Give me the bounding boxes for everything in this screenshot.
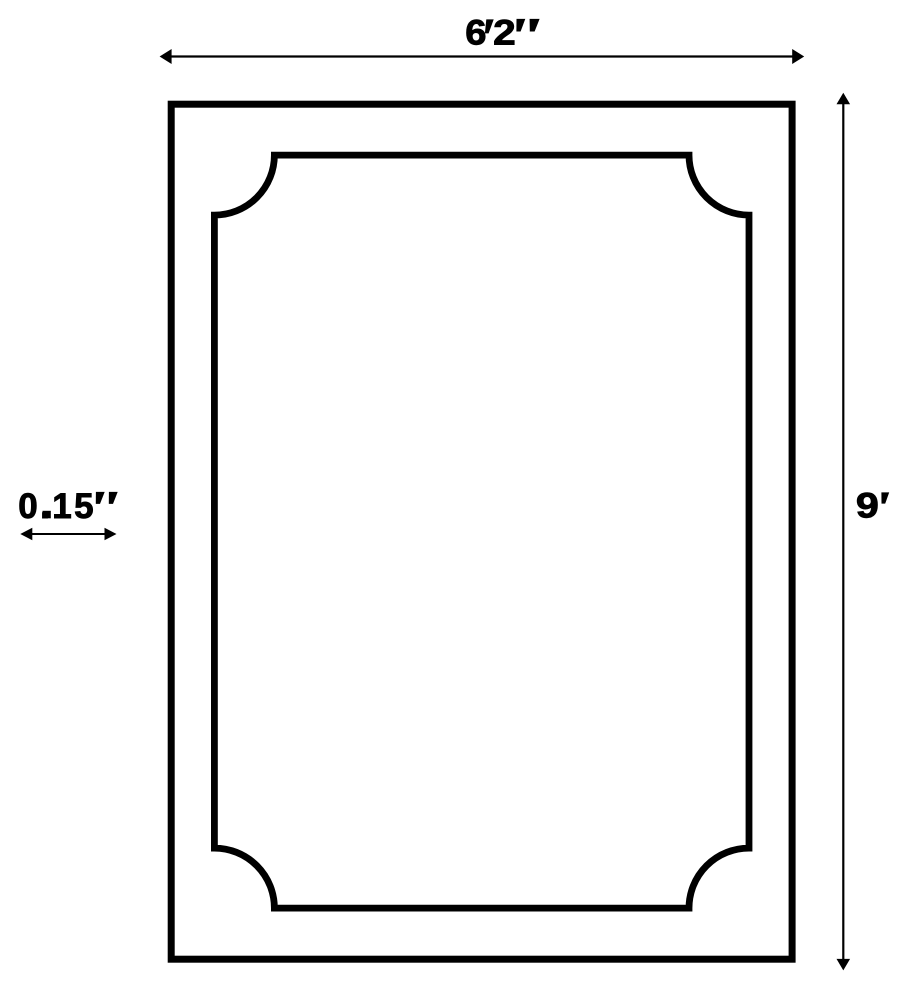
svg-text:6: 6 [465, 13, 486, 52]
svg-text:0.15: 0.15 [18, 487, 96, 526]
svg-text:9: 9 [856, 486, 879, 525]
svg-text:2: 2 [493, 14, 516, 53]
